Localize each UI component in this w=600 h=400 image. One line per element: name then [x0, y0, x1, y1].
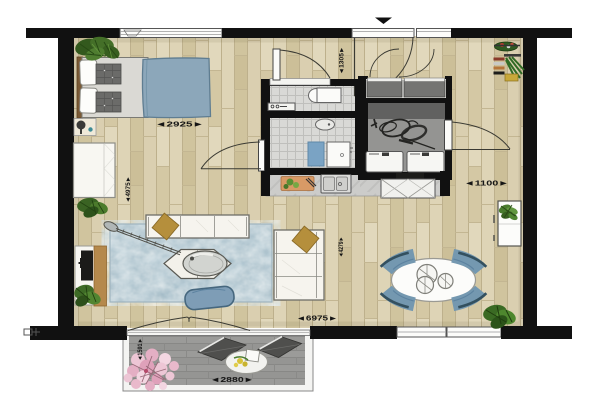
svg-text:◄1591►: ◄1591► — [137, 338, 144, 361]
svg-text:◄4279►: ◄4279► — [338, 237, 345, 258]
svg-text:◄1305►: ◄1305► — [339, 47, 346, 75]
svg-text:◄4975►: ◄4975► — [125, 176, 132, 203]
svg-text:◄2880►: ◄2880► — [210, 375, 254, 384]
svg-text:◄1100►: ◄1100► — [464, 179, 509, 188]
svg-text:◄6975►: ◄6975► — [296, 316, 338, 323]
svg-text:◄2925►: ◄2925► — [155, 120, 204, 129]
